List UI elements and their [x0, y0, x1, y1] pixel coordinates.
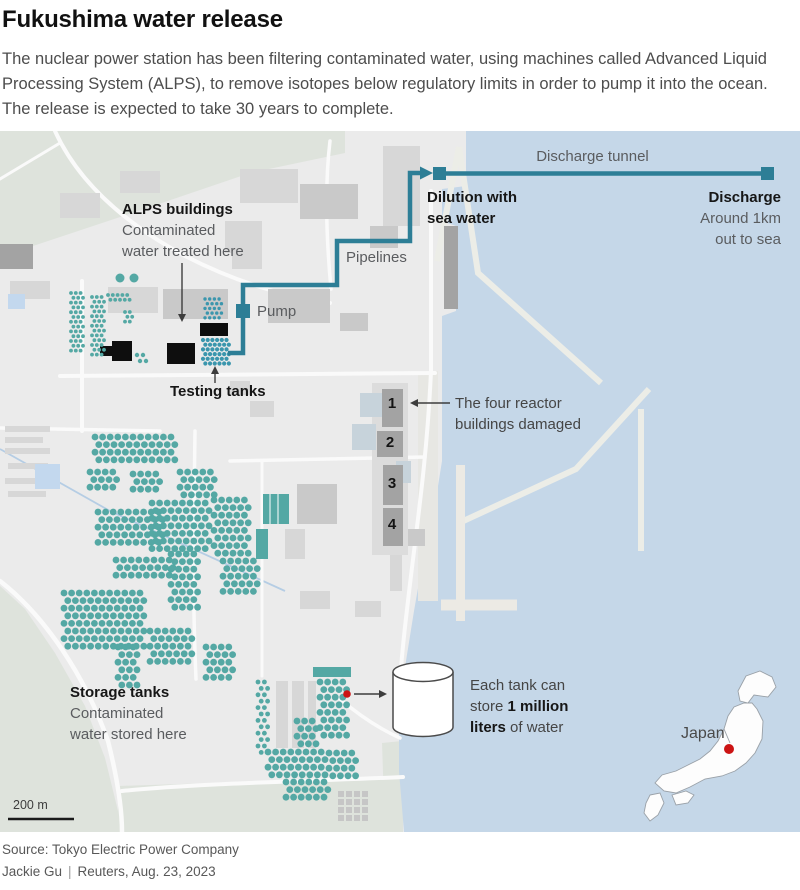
terrain-green-s [118, 777, 403, 832]
sample-tank-dot [343, 690, 351, 698]
japan-label: Japan [681, 723, 725, 744]
infographic-page: Fukushima water release The nuclear powe… [0, 0, 800, 890]
testing-tanks-label: Testing tanks [170, 381, 266, 402]
byline: Jackie Gu [2, 864, 62, 879]
dilution-label: Dilution with sea water [427, 187, 517, 229]
tank-capacity-note: Each tank can store 1 million liters of … [470, 675, 568, 738]
source-line: Source: Tokyo Electric Power Company [2, 842, 800, 857]
header: Fukushima water release The nuclear powe… [0, 0, 800, 122]
reactor-number-2: 2 [383, 434, 397, 451]
reactor-note: The four reactor buildings damaged [455, 393, 581, 435]
byline-row: Jackie Gu|Reuters, Aug. 23, 2023 [2, 864, 800, 879]
pipelines-label: Pipelines [346, 247, 407, 268]
byline-separator: | [62, 864, 78, 879]
pump-label: Pump [257, 301, 296, 322]
storage-tanks-label: Storage tanks Contaminated water stored … [70, 682, 187, 745]
discharge-tunnel-label: Discharge tunnel [500, 146, 685, 167]
tank-cylinder-icon [393, 663, 453, 737]
credit: Reuters, Aug. 23, 2023 [78, 864, 216, 879]
fukushima-location-dot [724, 744, 734, 754]
discharge-label: Discharge Around 1km out to sea [700, 187, 781, 250]
alps-label: ALPS buildings Contaminated water treate… [122, 199, 244, 262]
discharge-node [761, 167, 774, 180]
plant-map: Discharge tunnel Dilution with sea water… [0, 131, 800, 832]
harbor-pier [456, 465, 465, 621]
footer: Source: Tokyo Electric Power Company Jac… [0, 832, 800, 879]
reactor-number-4: 4 [385, 516, 399, 533]
pump-node [236, 304, 250, 318]
page-title: Fukushima water release [2, 6, 790, 34]
reactor-number-1: 1 [385, 395, 399, 412]
reactor-number-3: 3 [385, 475, 399, 492]
intro-paragraph: The nuclear power station has been filte… [2, 47, 790, 122]
scale-label: 200 m [13, 795, 48, 816]
dilution-node [433, 167, 446, 180]
